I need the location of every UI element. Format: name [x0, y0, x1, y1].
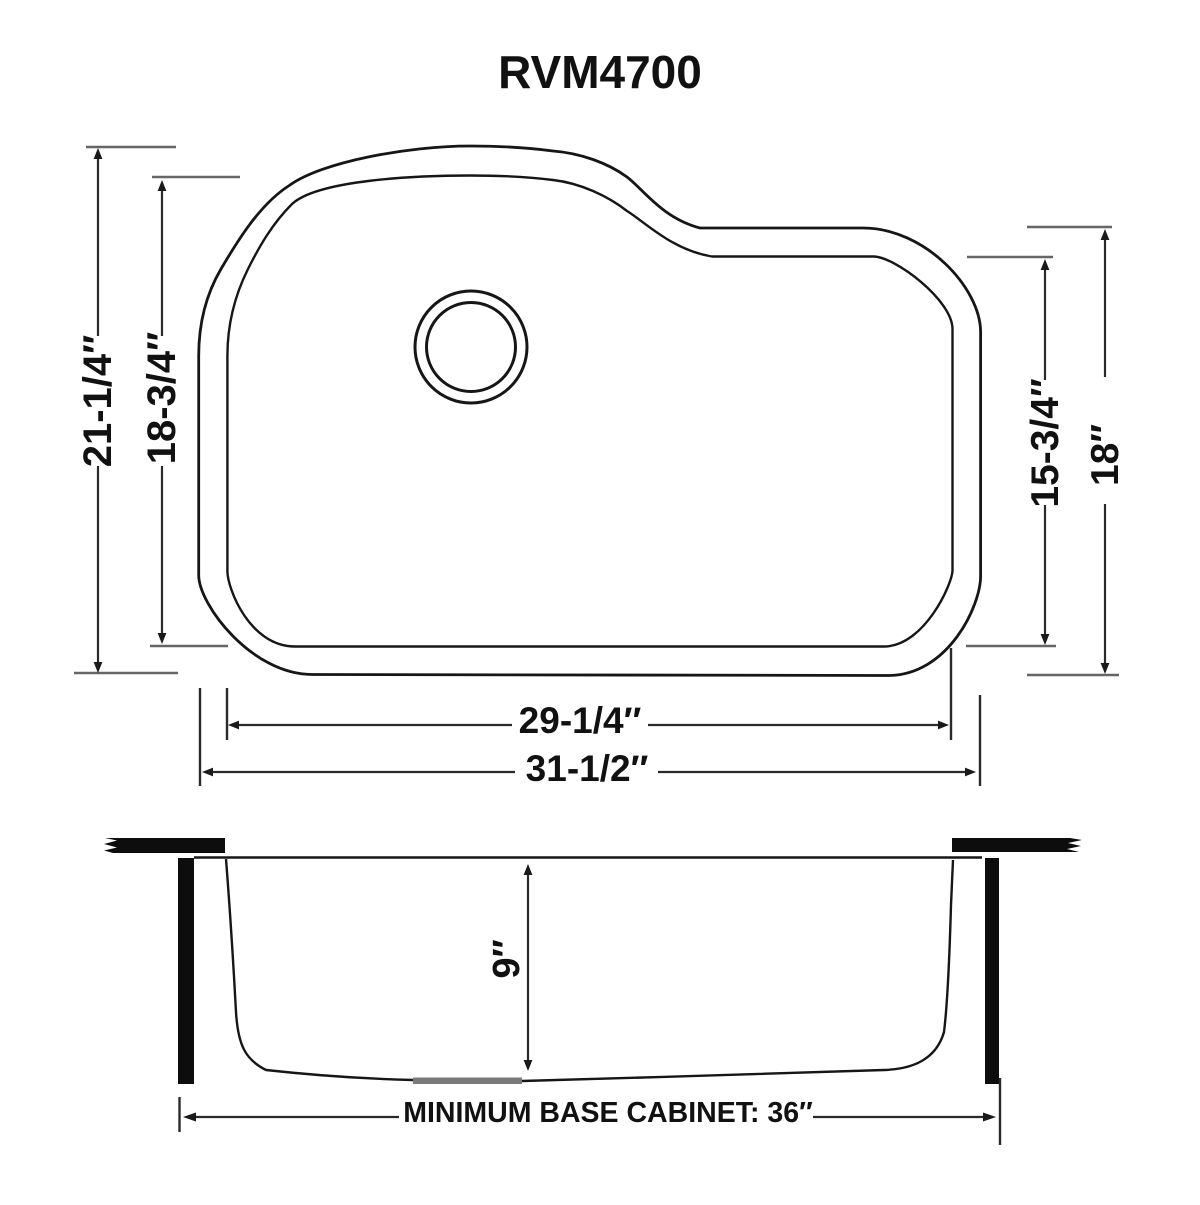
svg-text:31-1/2″: 31-1/2″ [526, 748, 649, 789]
svg-text:18-3/4″: 18-3/4″ [140, 332, 184, 465]
svg-text:RVM4700: RVM4700 [498, 46, 702, 98]
svg-text:15-3/4″: 15-3/4″ [1024, 378, 1067, 507]
svg-text:9″: 9″ [486, 939, 528, 978]
svg-text:29-1/4″: 29-1/4″ [519, 700, 642, 741]
svg-text:21-1/4″: 21-1/4″ [76, 335, 120, 468]
svg-text:MINIMUM BASE CABINET: 36″: MINIMUM BASE CABINET: 36″ [403, 1097, 813, 1129]
svg-text:18″: 18″ [1084, 424, 1127, 486]
